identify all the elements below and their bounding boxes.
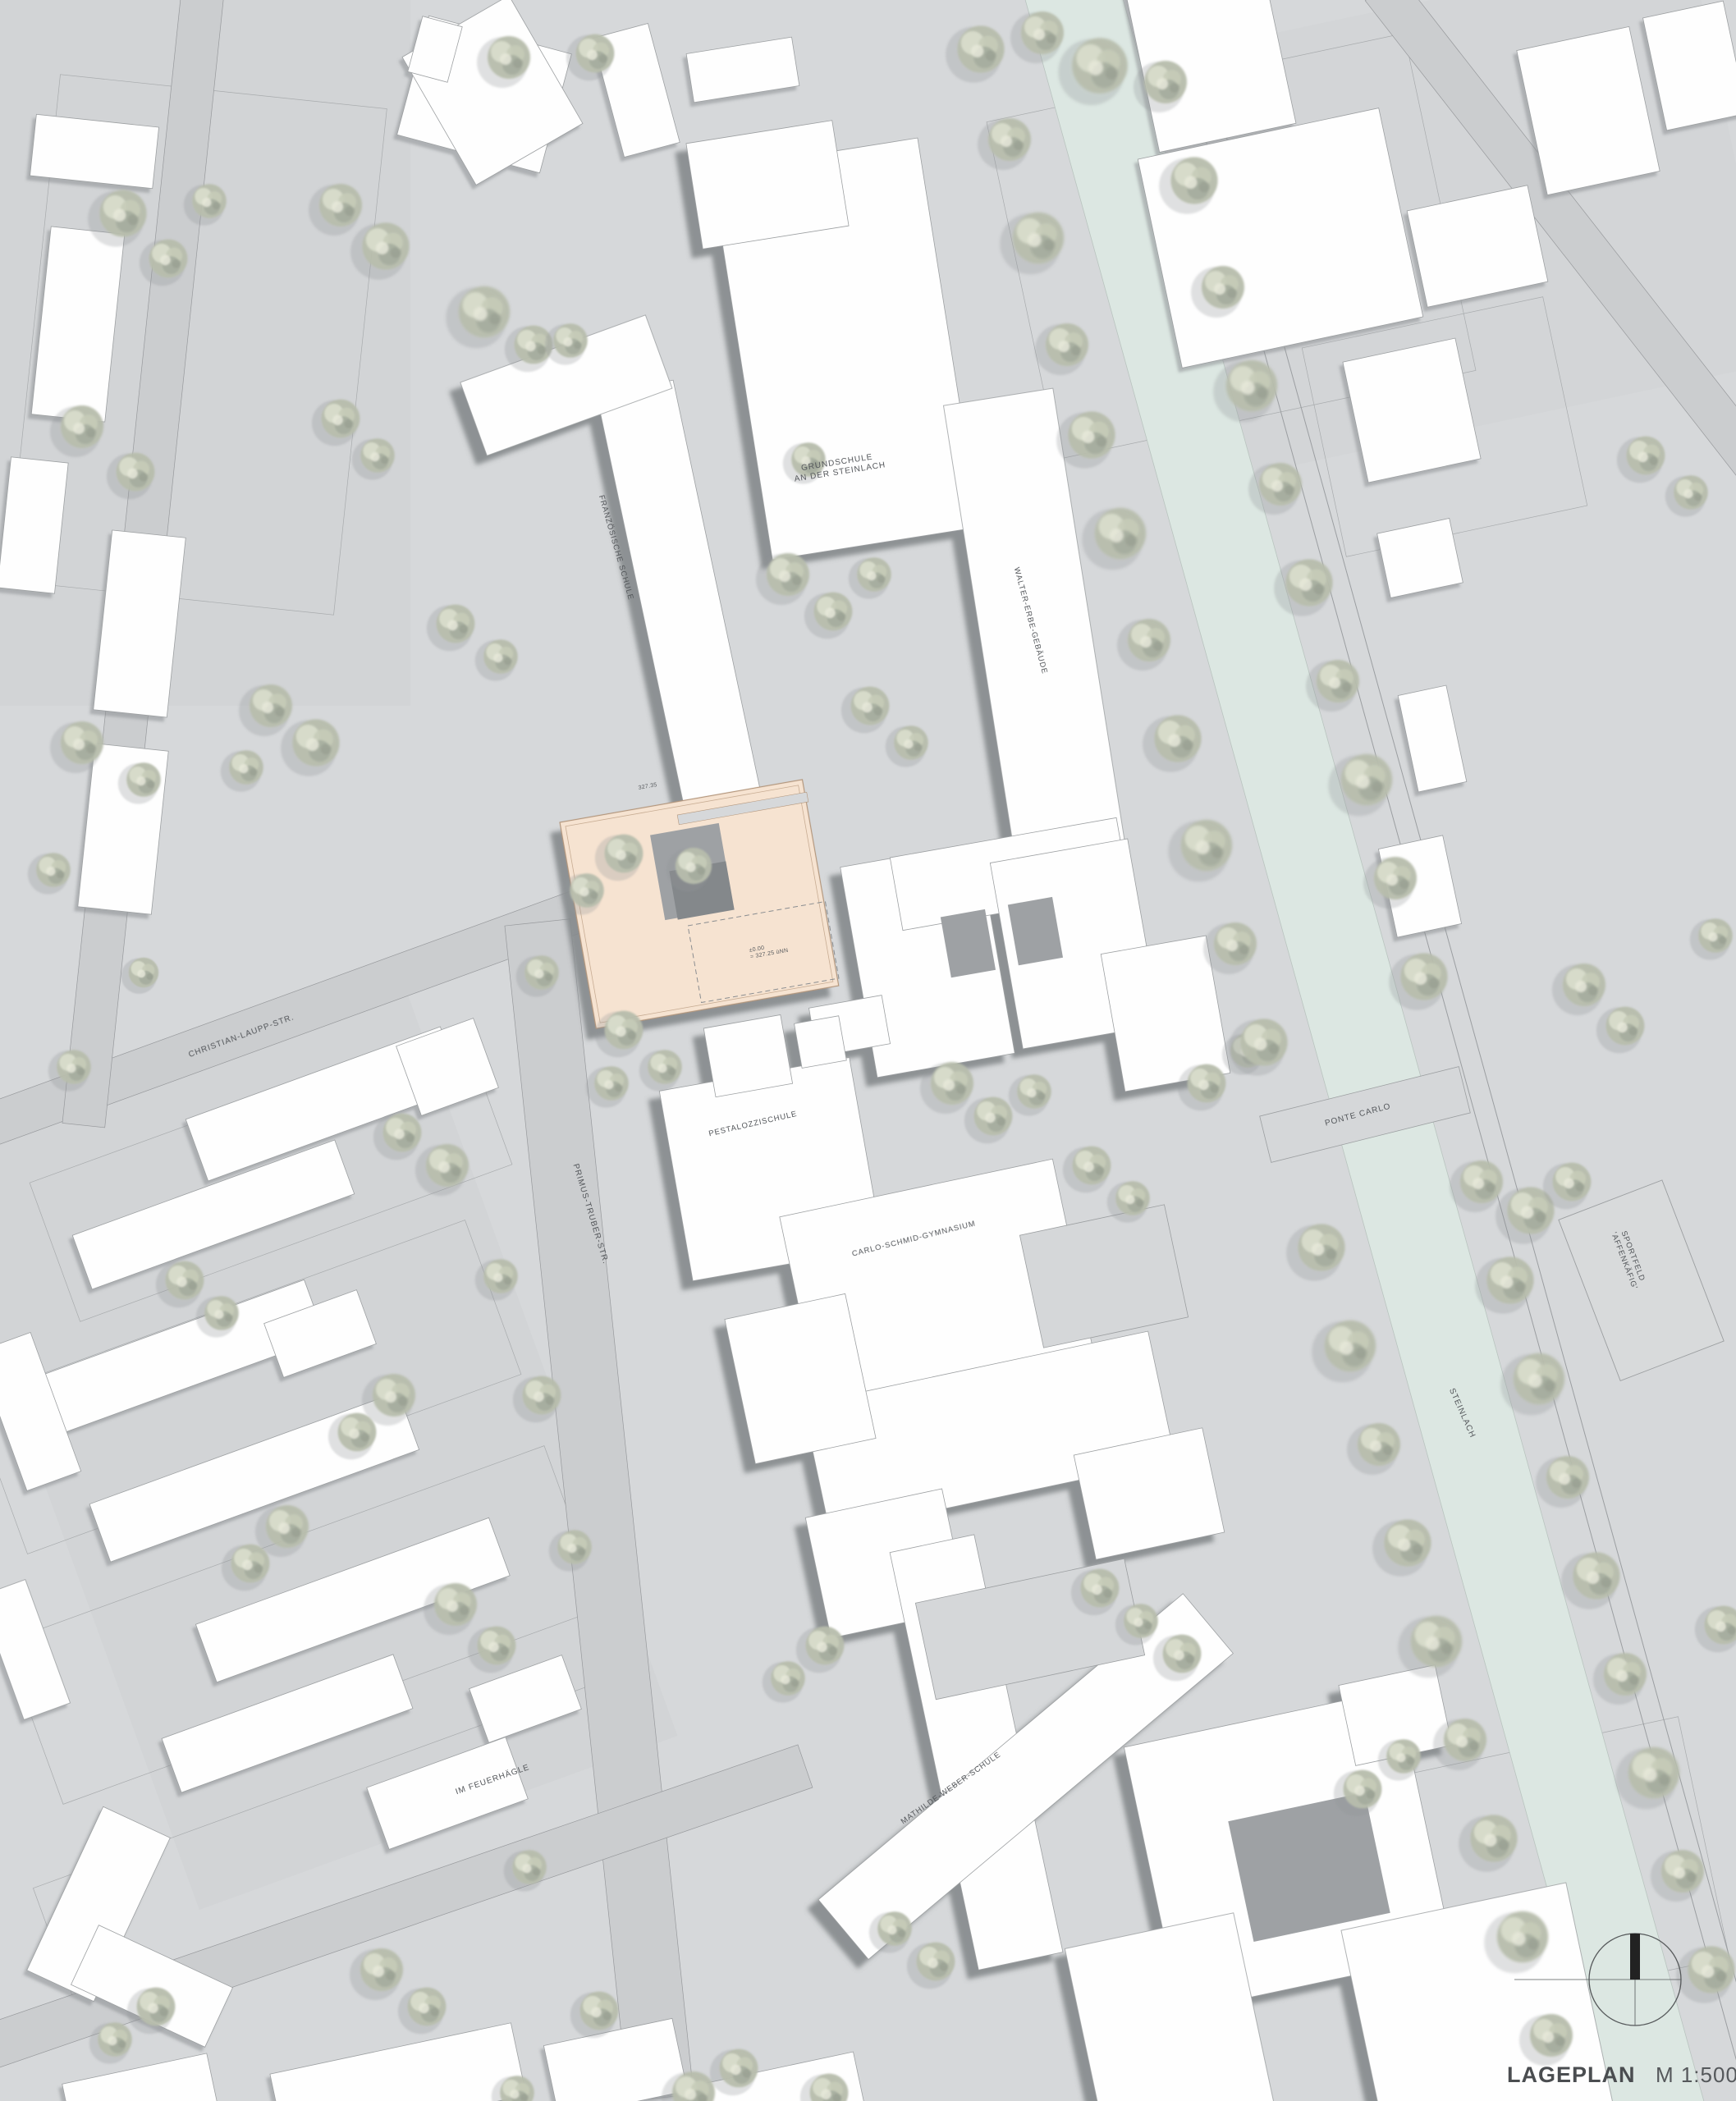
plan-title: LAGEPLAN M 1:500: [1507, 2062, 1736, 2087]
site-plan-page: GRUNDSCHULE AN DER STEINLACH FRANZÖSISCH…: [0, 0, 1736, 2101]
site-plan-map: GRUNDSCHULE AN DER STEINLACH FRANZÖSISCH…: [0, 0, 1736, 2101]
highlight-building: [560, 780, 839, 1028]
